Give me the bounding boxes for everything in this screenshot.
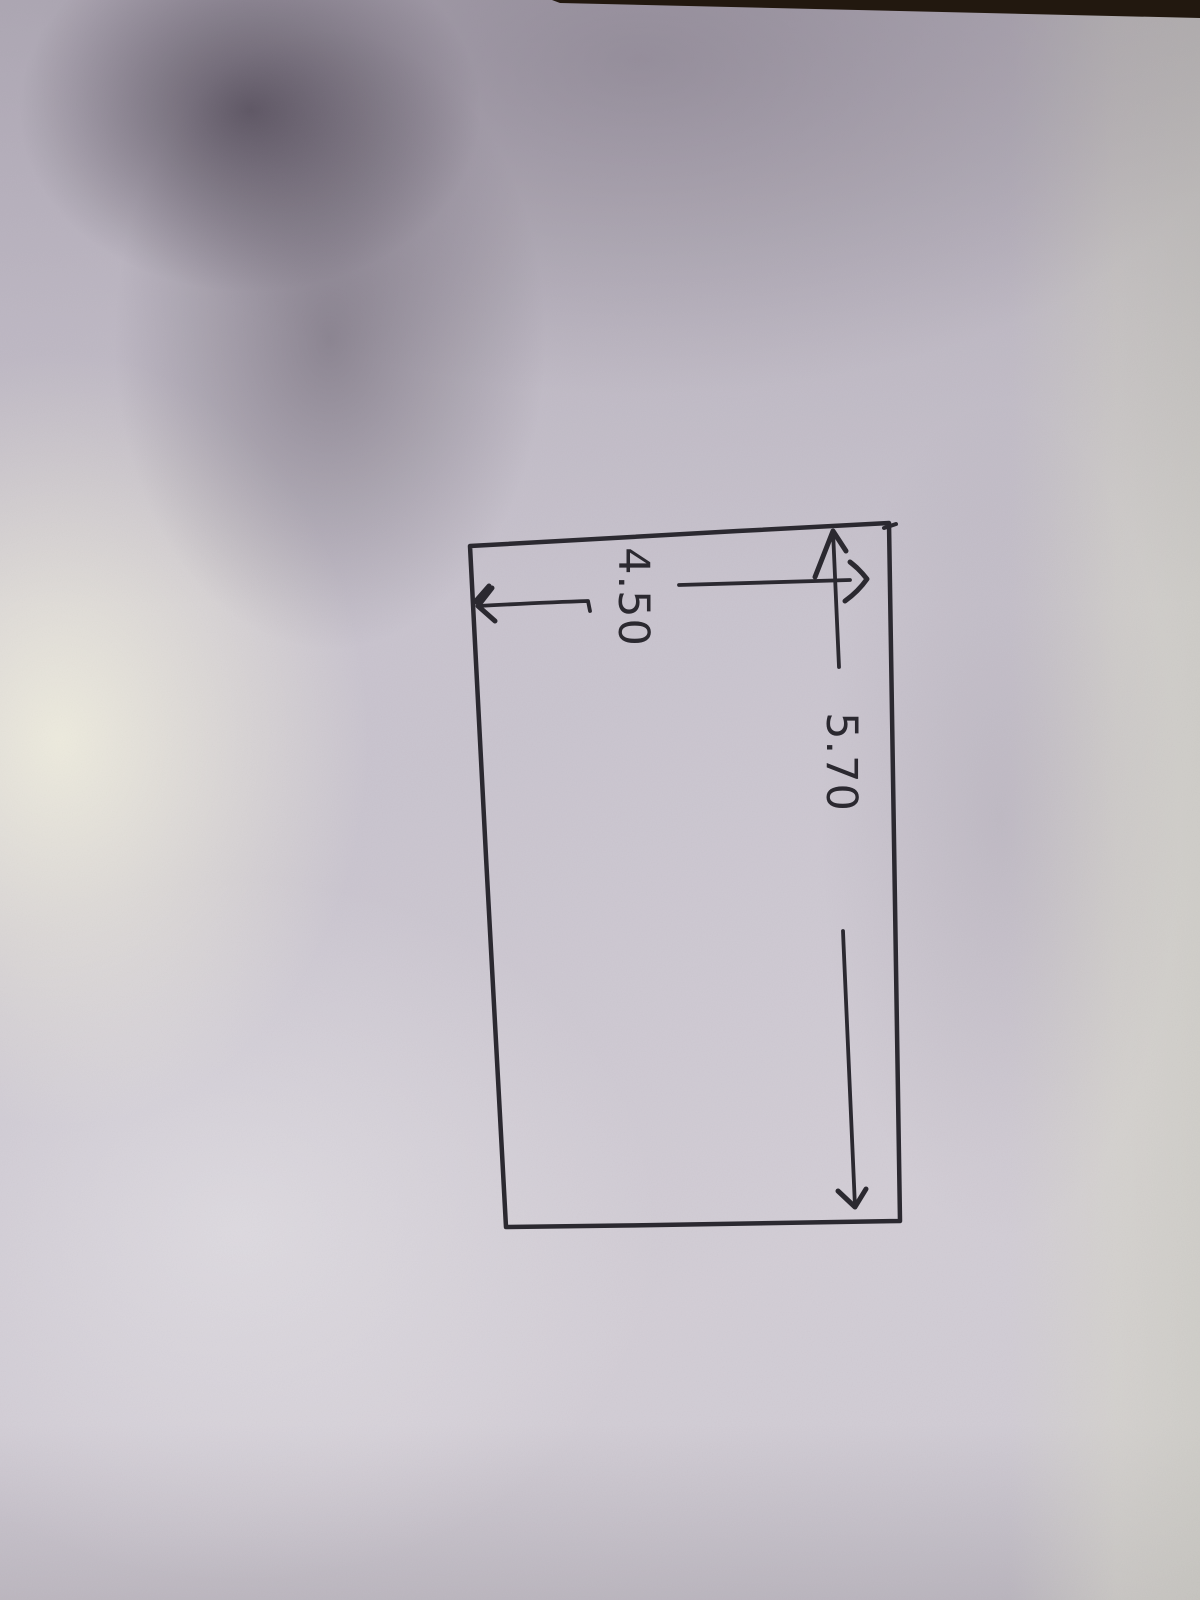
width-dimension: 4.50 — [475, 547, 867, 647]
length-dimension-line-upper — [833, 531, 839, 667]
length-arrowhead-top — [815, 531, 846, 577]
length-dimension-line-lower — [843, 931, 855, 1207]
length-label: 5.70 — [816, 712, 866, 812]
width-label: 4.50 — [608, 547, 658, 647]
width-dimension-line-right — [679, 580, 850, 585]
width-dimension-line-left — [478, 601, 590, 611]
photo-of-sketch: 5.70 4.50 — [0, 0, 1200, 1600]
sketch-drawing: 5.70 4.50 — [0, 0, 1200, 1600]
length-arrowhead-bottom — [838, 1189, 866, 1207]
length-dimension: 5.70 — [815, 531, 866, 1207]
